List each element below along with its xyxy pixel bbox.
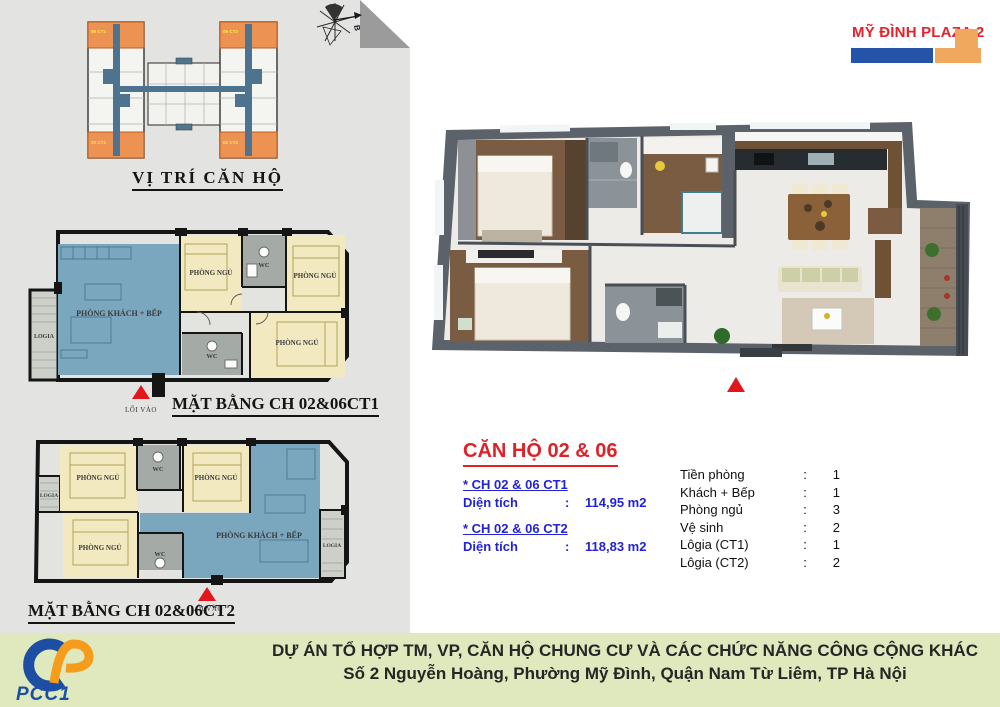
variant-ct2: * CH 02 & 06 CT2 Diện tích:118,83 m2 — [463, 520, 646, 556]
footer-address-line: Số 2 Nguyễn Hoàng, Phường Mỹ Đình, Quận … — [250, 664, 1000, 684]
room-label: PHÒNG NGỦ — [77, 474, 120, 482]
folded-corner — [360, 0, 410, 48]
room-label: WC — [152, 466, 164, 473]
room-label: WC — [258, 262, 270, 269]
floorplan-ct2: PHÒNG NGỦ PHÒNG NGỦ PHÒNG NGỦ WC WC PHÒN… — [25, 435, 355, 613]
room-label: PHÒNG NGỦ — [190, 269, 233, 277]
variant-ct1: * CH 02 & 06 CT1 Diện tích:114,95 m2 — [463, 476, 646, 512]
room-label: PHÒNG KHÁCH + BẾP — [76, 308, 162, 318]
footer: DỰ ÁN TỔ HỢP TM, VP, CĂN HỘ CHUNG CƯ VÀ … — [0, 633, 1000, 707]
variant-field: Diện tích — [463, 494, 565, 512]
locator-title: VỊ TRÍ CĂN HỘ — [132, 168, 283, 191]
room-label: PHÒNG NGỦ — [195, 474, 238, 482]
render-door-mat — [740, 348, 782, 357]
spec-row: Vệ sinh:2 — [680, 519, 840, 537]
spec-row: Phòng ngủ:3 — [680, 501, 840, 519]
footer-project-line: DỰ ÁN TỔ HỢP TM, VP, CĂN HỘ CHUNG CƯ VÀ … — [250, 641, 1000, 661]
brochure-page: B — [0, 0, 1000, 707]
ct1-entrance-label: LỐI VÀO — [125, 406, 157, 414]
room-label: LOGIA — [34, 334, 55, 340]
spec-row: Lôgia (CT1):1 — [680, 536, 840, 554]
unit-label: 02 CT2 — [223, 140, 239, 145]
variant-list: * CH 02 & 06 CT1 Diện tích:114,95 m2 * C… — [463, 476, 646, 564]
render-plant — [714, 328, 730, 344]
apartment-info: CĂN HỘ 02 & 06 * CH 02 & 06 CT1 Diện tíc… — [463, 440, 863, 575]
unit-label: 02 CT1 — [91, 140, 107, 145]
brand-orange-square — [955, 29, 978, 48]
room-label: WC — [154, 551, 166, 558]
variant-colon: : — [565, 538, 585, 556]
brand-blue-bar — [851, 48, 933, 63]
room-label: LOGIA — [323, 543, 341, 549]
spec-row: Lôgia (CT2):2 — [680, 554, 840, 572]
room-label: PHÒNG NGỦ — [276, 339, 319, 347]
variant-field: Diện tích — [463, 538, 565, 556]
variant-value: 114,95 m2 — [585, 494, 646, 512]
locator-title-wrap: VỊ TRÍ CĂN HỘ — [80, 168, 335, 191]
room-label: WC — [206, 353, 218, 360]
room-label: LOGIA — [40, 493, 58, 499]
spec-row: Khách + Bếp:1 — [680, 484, 840, 502]
building-locator-diagram: 06 CT1 02 CT1 06 CT2 02 CT2 — [80, 14, 335, 166]
ct1-wc-1 — [242, 235, 286, 287]
ct1-title-wrap: MẶT BẰNG CH 02&06CT1 — [172, 394, 379, 417]
ct2-entrance-arrow — [198, 587, 216, 601]
apartment-info-title: CĂN HỘ 02 & 06 — [463, 440, 618, 467]
variant-value: 118,83 m2 — [585, 538, 646, 556]
floorplan-ct1: PHÒNG KHÁCH + BẾP PHÒNG NGỦ PHÒNG NGỦ PH… — [25, 222, 355, 417]
spec-row: Tiền phòng:1 — [680, 466, 840, 484]
render-kitchen-cabinets — [735, 141, 902, 149]
spec-list: Tiền phòng:1 Khách + Bếp:1 Phòng ngủ:3 V… — [680, 466, 840, 572]
ct1-entrance-arrow — [132, 385, 150, 399]
render-wardrobe — [565, 140, 587, 240]
variant-colon: : — [565, 494, 585, 512]
compass-north-label: B — [352, 24, 362, 31]
render-entrance-arrow — [727, 377, 745, 392]
brand-orange-bar — [935, 48, 981, 63]
room-label: PHÒNG NGỦ — [294, 272, 337, 280]
ct2-title-wrap: MẶT BẰNG CH 02&06CT2 — [28, 601, 235, 624]
pcc1-logo-p — [54, 644, 89, 683]
pcc1-logo-text: PCC1 — [16, 684, 71, 704]
ct2-title: MẶT BẰNG CH 02&06CT2 — [28, 601, 235, 624]
pcc1-logo: PCC1 — [8, 636, 108, 704]
room-label: PHÒNG NGỦ — [79, 544, 122, 552]
room-label: PHÒNG KHÁCH + BẾP — [216, 530, 302, 540]
unit-label: 06 CT1 — [91, 29, 107, 34]
render-dining-set — [788, 184, 850, 250]
variant-name: * CH 02 & 06 CT1 — [463, 476, 646, 494]
ct1-title: MẶT BẰNG CH 02&06CT1 — [172, 394, 379, 417]
apartment-3d-render — [420, 100, 998, 382]
variant-name: * CH 02 & 06 CT2 — [463, 520, 646, 538]
unit-label: 06 CT2 — [223, 29, 239, 34]
render-balcony — [920, 204, 968, 356]
